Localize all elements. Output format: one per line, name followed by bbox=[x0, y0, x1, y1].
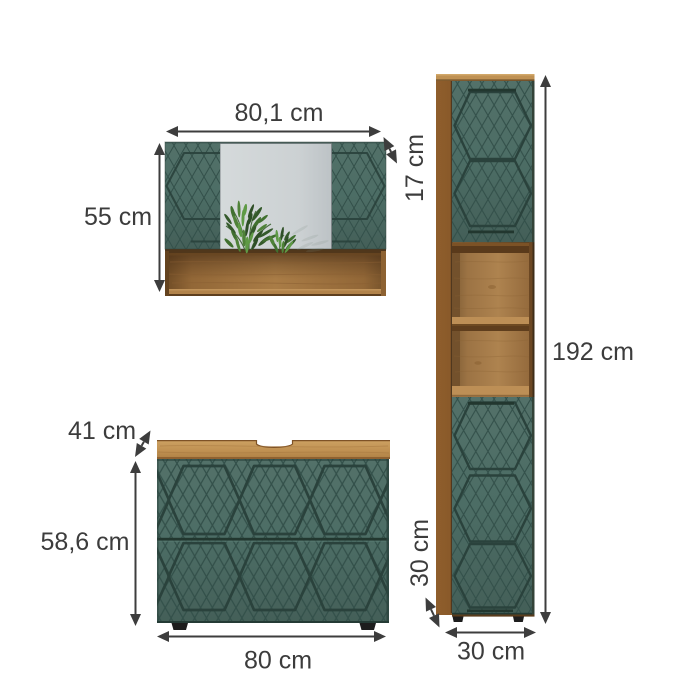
svg-text:41 cm: 41 cm bbox=[68, 417, 136, 445]
svg-text:30 cm: 30 cm bbox=[457, 638, 525, 666]
svg-text:58,6 cm: 58,6 cm bbox=[41, 528, 130, 556]
svg-text:80 cm: 80 cm bbox=[244, 647, 312, 675]
svg-text:55 cm: 55 cm bbox=[84, 203, 152, 231]
svg-text:192 cm: 192 cm bbox=[552, 338, 634, 366]
svg-text:17 cm: 17 cm bbox=[401, 134, 429, 202]
svg-text:30 cm: 30 cm bbox=[406, 519, 434, 587]
svg-text:80,1 cm: 80,1 cm bbox=[235, 99, 324, 127]
